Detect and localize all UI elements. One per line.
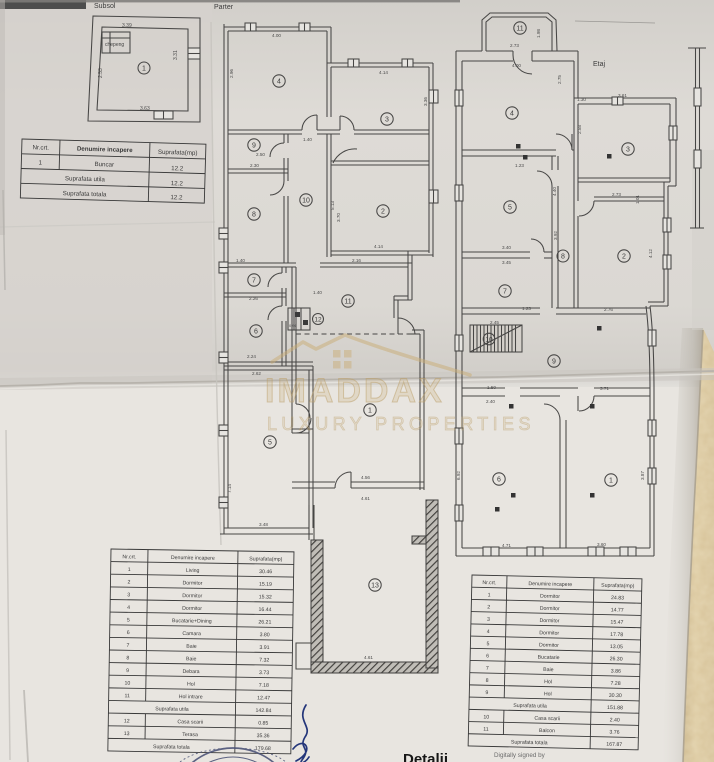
svg-text:10: 10 <box>485 337 493 344</box>
svg-text:2.62: 2.62 <box>252 371 261 376</box>
svg-text:0.96: 0.96 <box>289 323 298 328</box>
svg-text:Suprafata(mp): Suprafata(mp) <box>158 149 198 157</box>
svg-text:5: 5 <box>508 205 512 212</box>
svg-text:Baie: Baie <box>543 667 554 673</box>
svg-text:8: 8 <box>561 254 565 261</box>
svg-text:Hol: Hol <box>187 682 195 688</box>
svg-text:chepeng: chepeng <box>105 42 124 48</box>
svg-text:3.92: 3.92 <box>553 231 558 240</box>
svg-text:13: 13 <box>124 731 130 737</box>
svg-text:11: 11 <box>124 693 130 699</box>
svg-text:3.76: 3.76 <box>609 730 619 736</box>
svg-text:4: 4 <box>487 629 490 635</box>
svg-text:30.30: 30.30 <box>609 693 622 699</box>
svg-text:Digitally signed by: Digitally signed by <box>494 752 546 759</box>
svg-text:10: 10 <box>302 198 310 205</box>
svg-text:12.2: 12.2 <box>171 165 184 172</box>
svg-text:2.73: 2.73 <box>510 43 519 48</box>
svg-text:Suprafata(mp): Suprafata(mp) <box>249 556 283 563</box>
svg-text:1.40: 1.40 <box>236 258 245 263</box>
svg-text:Dormitor: Dormitor <box>182 606 202 612</box>
svg-text:1.23: 1.23 <box>522 306 531 311</box>
svg-text:Debara: Debara <box>183 669 200 675</box>
svg-text:Subsol: Subsol <box>94 3 116 10</box>
svg-text:3.80: 3.80 <box>260 632 270 638</box>
svg-text:2.96: 2.96 <box>229 69 234 78</box>
svg-text:9: 9 <box>252 143 256 150</box>
svg-text:6.92: 6.92 <box>456 471 461 480</box>
svg-text:4.61: 4.61 <box>364 655 373 660</box>
svg-text:7.18: 7.18 <box>259 683 269 689</box>
svg-text:2.53: 2.53 <box>98 68 104 78</box>
svg-text:151.88: 151.88 <box>607 705 623 711</box>
svg-text:13.05: 13.05 <box>610 644 623 650</box>
svg-text:2.45: 2.45 <box>490 320 499 325</box>
svg-text:10: 10 <box>124 681 130 687</box>
svg-text:1.50: 1.50 <box>487 385 496 390</box>
svg-text:1: 1 <box>142 66 146 73</box>
svg-text:6: 6 <box>254 329 258 336</box>
svg-text:15.19: 15.19 <box>259 582 272 588</box>
svg-text:1: 1 <box>609 478 613 485</box>
svg-text:2.50: 2.50 <box>256 152 265 157</box>
svg-text:Dormitor: Dormitor <box>539 630 559 636</box>
svg-text:Suprafata utila: Suprafata utila <box>65 175 106 183</box>
svg-text:14.77: 14.77 <box>611 607 624 613</box>
svg-text:2.40: 2.40 <box>610 717 620 723</box>
svg-text:Bucatarie: Bucatarie <box>538 655 560 661</box>
svg-text:2.76: 2.76 <box>604 307 613 312</box>
svg-text:Baie: Baie <box>186 656 197 662</box>
svg-text:1.40: 1.40 <box>313 290 322 295</box>
svg-text:1.98: 1.98 <box>536 29 541 38</box>
svg-text:5.13: 5.13 <box>330 201 335 210</box>
svg-text:167.87: 167.87 <box>606 742 622 748</box>
svg-text:2: 2 <box>127 580 130 586</box>
svg-text:26.21: 26.21 <box>258 620 271 626</box>
svg-text:4.00: 4.00 <box>512 63 521 68</box>
svg-text:3.61: 3.61 <box>618 93 627 98</box>
svg-text:3.48: 3.48 <box>259 522 268 527</box>
svg-text:35.36: 35.36 <box>257 733 270 739</box>
svg-text:5: 5 <box>268 440 272 447</box>
svg-text:142.84: 142.84 <box>255 708 271 714</box>
svg-text:Suprafata totala: Suprafata totala <box>511 740 548 747</box>
svg-text:7: 7 <box>126 643 129 649</box>
svg-text:1.01: 1.01 <box>635 195 640 204</box>
svg-text:7: 7 <box>252 278 256 285</box>
svg-text:Hol intrare: Hol intrare <box>179 694 203 700</box>
svg-text:10: 10 <box>483 714 489 720</box>
svg-text:6: 6 <box>127 630 130 636</box>
svg-text:2.30: 2.30 <box>250 163 259 168</box>
svg-text:2.24: 2.24 <box>247 354 256 359</box>
svg-text:15.32: 15.32 <box>259 594 272 600</box>
svg-text:Suprafata utila: Suprafata utila <box>155 706 189 713</box>
svg-text:Dormitor: Dormitor <box>540 606 560 612</box>
svg-text:9: 9 <box>485 690 488 696</box>
svg-text:2.16: 2.16 <box>352 258 361 263</box>
svg-text:Nr.crt.: Nr.crt. <box>32 144 49 151</box>
svg-text:Suprafata totala: Suprafata totala <box>63 190 107 198</box>
svg-text:Hol: Hol <box>544 679 552 685</box>
svg-text:Denumire incapere: Denumire incapere <box>528 581 572 588</box>
svg-text:Casa scarii: Casa scarii <box>177 719 203 725</box>
svg-text:Baie: Baie <box>186 644 197 650</box>
svg-text:2.40: 2.40 <box>486 399 495 404</box>
svg-text:4: 4 <box>510 111 514 118</box>
svg-text:2: 2 <box>622 254 626 261</box>
svg-text:5: 5 <box>486 641 489 647</box>
svg-text:7: 7 <box>503 289 507 296</box>
svg-text:3.71: 3.71 <box>600 386 609 391</box>
svg-text:4.71: 4.71 <box>502 543 511 548</box>
svg-text:7: 7 <box>486 666 489 672</box>
svg-text:8: 8 <box>486 678 489 684</box>
svg-text:179.68: 179.68 <box>255 746 271 752</box>
svg-text:4.12: 4.12 <box>648 249 653 258</box>
svg-text:9: 9 <box>552 359 556 366</box>
svg-text:4: 4 <box>277 79 281 86</box>
svg-text:11: 11 <box>344 299 351 306</box>
svg-text:3.86: 3.86 <box>611 668 621 674</box>
svg-text:15.47: 15.47 <box>610 620 623 626</box>
svg-text:4.00: 4.00 <box>272 33 281 38</box>
svg-text:3.39: 3.39 <box>122 23 132 29</box>
svg-text:17.78: 17.78 <box>610 632 623 638</box>
svg-text:3.91: 3.91 <box>259 645 269 651</box>
svg-text:1: 1 <box>488 592 491 598</box>
svg-text:Etaj: Etaj <box>593 61 606 68</box>
svg-text:Terasa: Terasa <box>182 732 198 738</box>
svg-text:Suprafata(mp): Suprafata(mp) <box>601 583 635 590</box>
svg-text:3.40: 3.40 <box>502 245 511 250</box>
svg-text:3: 3 <box>626 147 630 154</box>
svg-text:2.58: 2.58 <box>577 125 582 134</box>
svg-text:Nr.crt.: Nr.crt. <box>122 554 136 560</box>
svg-text:1.40: 1.40 <box>303 137 312 142</box>
svg-text:12.2: 12.2 <box>171 180 184 187</box>
svg-text:4.40: 4.40 <box>552 187 557 196</box>
svg-text:Parter: Parter <box>214 4 234 11</box>
svg-text:7.14: 7.14 <box>227 484 232 493</box>
svg-text:Bucatarie+Dining: Bucatarie+Dining <box>172 618 212 625</box>
svg-text:Camara: Camara <box>182 631 201 637</box>
svg-text:IMADDAX: IMADDAX <box>265 372 445 410</box>
svg-text:3.87: 3.87 <box>640 471 645 480</box>
svg-text:Detalii: Detalii <box>403 751 448 762</box>
svg-text:2.73: 2.73 <box>612 192 621 197</box>
svg-text:3.45: 3.45 <box>502 260 511 265</box>
svg-text:3.36: 3.36 <box>423 97 428 106</box>
svg-text:12.2: 12.2 <box>170 194 183 201</box>
svg-text:13: 13 <box>371 583 379 590</box>
svg-text:LUXURY PROPERTIES: LUXURY PROPERTIES <box>267 414 535 434</box>
svg-text:Living: Living <box>186 568 200 574</box>
svg-text:Balcon: Balcon <box>539 728 555 734</box>
svg-text:Dormitor: Dormitor <box>540 594 560 600</box>
svg-text:Dormitor: Dormitor <box>539 642 559 648</box>
svg-text:Dormitor: Dormitor <box>182 593 202 599</box>
svg-text:2: 2 <box>381 209 385 216</box>
svg-text:Suprafata totala: Suprafata totala <box>153 744 190 751</box>
svg-text:Suprafata utila: Suprafata utila <box>513 703 547 710</box>
svg-text:Denumire incapere: Denumire incapere <box>171 555 215 562</box>
svg-text:11: 11 <box>516 26 523 33</box>
svg-text:3.73: 3.73 <box>259 670 269 676</box>
svg-text:Dormitor: Dormitor <box>182 580 202 586</box>
svg-text:1.30: 1.30 <box>577 97 586 102</box>
svg-text:8: 8 <box>126 655 129 661</box>
svg-text:12: 12 <box>124 718 130 724</box>
svg-text:12: 12 <box>314 317 322 324</box>
svg-text:4: 4 <box>127 605 130 611</box>
svg-text:Casa scarii: Casa scarii <box>534 716 560 723</box>
svg-text:2.26: 2.26 <box>249 296 258 301</box>
svg-text:4.56: 4.56 <box>361 475 370 480</box>
svg-text:11: 11 <box>483 727 489 733</box>
svg-text:3: 3 <box>487 617 490 623</box>
svg-text:3.70: 3.70 <box>336 213 341 222</box>
svg-text:5: 5 <box>127 617 130 623</box>
svg-text:1: 1 <box>128 567 131 573</box>
svg-text:Dormitor: Dormitor <box>539 618 559 624</box>
svg-text:24.83: 24.83 <box>611 595 624 601</box>
svg-text:3: 3 <box>385 117 389 124</box>
svg-text:16.44: 16.44 <box>259 607 272 613</box>
svg-text:3.31: 3.31 <box>173 50 179 60</box>
svg-text:3.63: 3.63 <box>140 106 150 112</box>
svg-text:6: 6 <box>497 477 501 484</box>
svg-text:3: 3 <box>127 592 130 598</box>
svg-text:0.85: 0.85 <box>258 721 268 727</box>
svg-text:Nr.crt.: Nr.crt. <box>482 580 496 586</box>
svg-text:7.28: 7.28 <box>610 681 620 687</box>
svg-text:4.14: 4.14 <box>374 244 383 249</box>
svg-text:12.47: 12.47 <box>257 695 270 701</box>
svg-text:4.14: 4.14 <box>379 70 388 75</box>
svg-text:7.32: 7.32 <box>259 657 269 663</box>
svg-text:8: 8 <box>252 212 256 219</box>
svg-text:6: 6 <box>486 653 489 659</box>
svg-text:26.30: 26.30 <box>610 656 623 662</box>
svg-text:3.60: 3.60 <box>597 542 606 547</box>
svg-text:1.23: 1.23 <box>515 163 524 168</box>
svg-text:4.61: 4.61 <box>361 496 370 501</box>
svg-text:Hol: Hol <box>544 691 552 697</box>
svg-text:9: 9 <box>126 668 129 674</box>
svg-text:2: 2 <box>487 605 490 611</box>
svg-text:30.46: 30.46 <box>259 569 272 575</box>
svg-text:Buncar: Buncar <box>94 161 114 169</box>
svg-text:2.75: 2.75 <box>557 75 562 84</box>
